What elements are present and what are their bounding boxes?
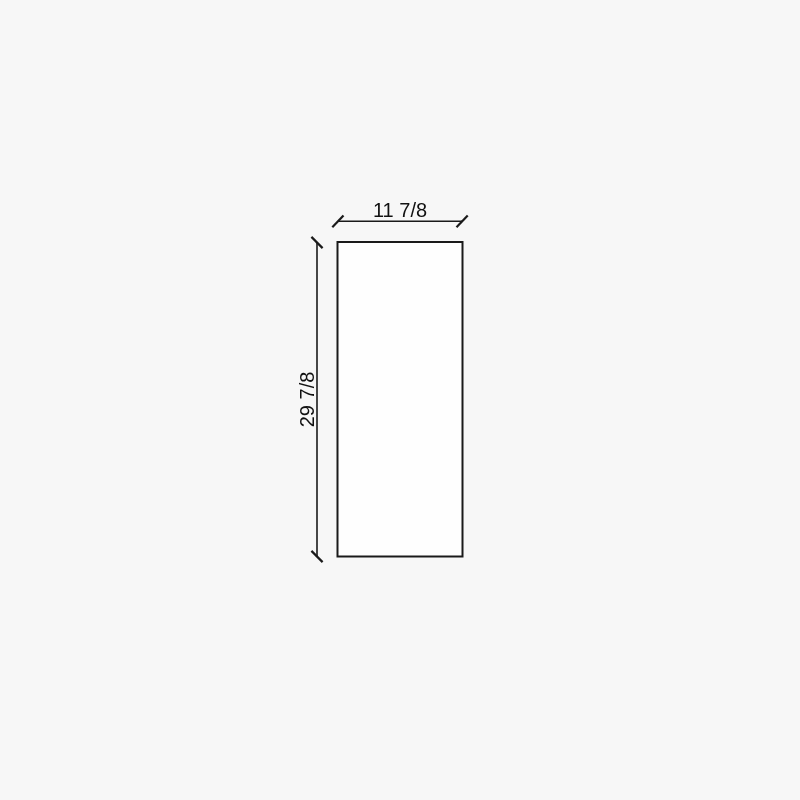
svg-text:11 7/8: 11 7/8: [373, 199, 427, 221]
svg-text:29 7/8: 29 7/8: [296, 372, 318, 428]
